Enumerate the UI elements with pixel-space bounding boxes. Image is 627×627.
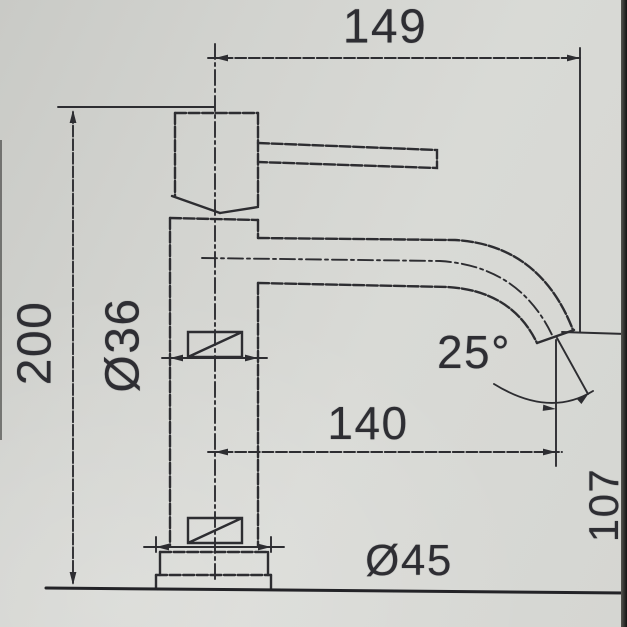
arrow-200-top — [70, 110, 77, 123]
mounting-surface-line — [46, 588, 625, 593]
centerlines — [202, 44, 553, 583]
lever-handle — [258, 143, 437, 168]
body-top-joint — [170, 218, 258, 220]
tip-reference-line — [562, 332, 626, 334]
ext-lines-o45 — [156, 537, 271, 552]
arrow-o36-right — [245, 355, 258, 362]
arrow-200-bottom — [70, 572, 77, 585]
arrow-140-right — [543, 449, 556, 456]
arrow-o45-left — [156, 544, 169, 551]
dim-label-outlet-height: 107 — [580, 468, 627, 543]
base-upper-sides — [160, 552, 268, 575]
arrow-149-left — [215, 55, 228, 62]
technical-drawing-page: 149 200 Ø36 25° 140 107 Ø45 — [0, 0, 627, 627]
arrow-149-right — [567, 55, 580, 62]
dim-label-base-diameter: Ø45 — [365, 536, 453, 586]
arrow-140-left — [215, 449, 228, 456]
base-plate-sides — [156, 575, 271, 589]
dim-label-height: 200 — [8, 301, 63, 386]
photo-edge-right — [621, 0, 627, 627]
arrow-o36-left — [170, 355, 183, 362]
arrow-angle-right — [577, 393, 589, 404]
dim-label-body-diameter: Ø36 — [96, 297, 151, 392]
arrow-angle-left — [543, 405, 556, 411]
drawing-linework — [0, 0, 627, 627]
arrow-o45-right — [258, 544, 271, 551]
head-joint-line-left — [172, 196, 220, 213]
head-joint-line-right — [220, 207, 258, 213]
photo-edge-left — [0, 140, 2, 440]
dim-label-reach-to-outlet: 140 — [327, 396, 408, 450]
dim-label-spout-angle: 25° — [437, 325, 511, 379]
angle-reference-slant — [557, 338, 588, 394]
dim-label-reach-overall: 149 — [343, 0, 428, 55]
